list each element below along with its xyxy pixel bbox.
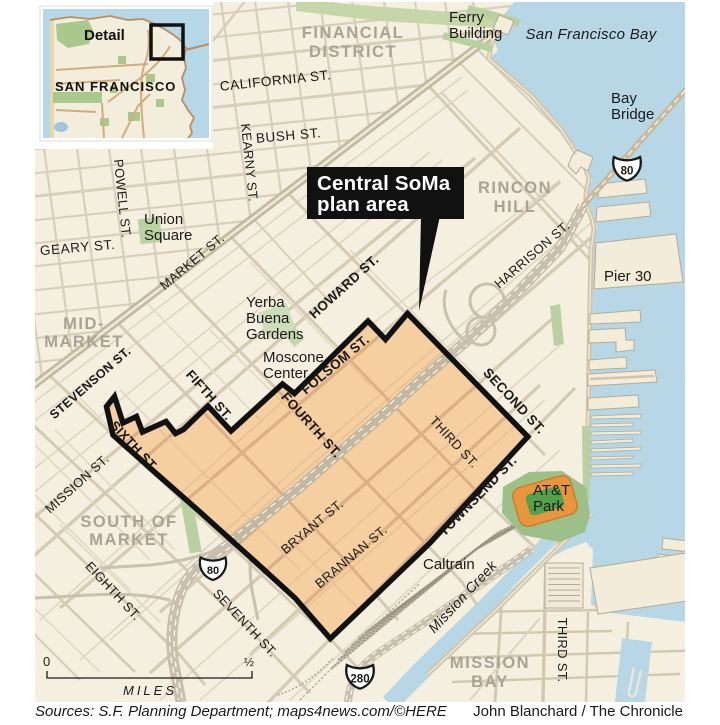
svg-text:DISTRICT: DISTRICT [309, 43, 397, 61]
svg-text:280: 280 [350, 673, 369, 685]
svg-text:FINANCIAL: FINANCIAL [302, 24, 404, 42]
svg-text:Gardens: Gardens [246, 326, 304, 343]
svg-text:AT&T: AT&T [533, 482, 570, 499]
svg-text:Bridge: Bridge [611, 106, 654, 123]
svg-text:Ferry: Ferry [449, 9, 484, 26]
svg-text:Center: Center [263, 365, 308, 382]
svg-text:Central SoMa: Central SoMa [317, 172, 451, 195]
svg-text:MISSION: MISSION [450, 654, 530, 672]
svg-text:MARKET: MARKET [89, 531, 169, 549]
svg-text:Bay: Bay [611, 90, 637, 107]
svg-text:THIRD ST.: THIRD ST. [555, 618, 570, 683]
svg-text:80: 80 [207, 565, 219, 577]
svg-text:Moscone: Moscone [263, 349, 324, 366]
svg-text:MARKET: MARKET [44, 333, 124, 351]
svg-text:Buena: Buena [246, 310, 290, 327]
svg-text:Square: Square [144, 227, 192, 244]
svg-text:Pier 30: Pier 30 [604, 268, 652, 285]
svg-text:MID-: MID- [63, 315, 105, 333]
svg-text:Park: Park [533, 498, 564, 515]
svg-text:Caltrain: Caltrain [423, 556, 475, 573]
svg-text:Building: Building [449, 25, 502, 42]
svg-text:SOUTH OF: SOUTH OF [80, 513, 177, 531]
svg-text:HILL: HILL [494, 198, 537, 216]
svg-text:San Francisco Bay: San Francisco Bay [526, 26, 658, 43]
svg-text:SAN FRANCISCO: SAN FRANCISCO [55, 79, 176, 94]
svg-text:Sources: S.F. Planning Departm: Sources: S.F. Planning Department; maps4… [35, 703, 448, 720]
svg-text:RINCON: RINCON [478, 179, 552, 197]
svg-text:80: 80 [621, 165, 634, 177]
svg-text:Detail: Detail [84, 27, 125, 44]
svg-text:½: ½ [244, 655, 254, 669]
svg-text:Union: Union [144, 211, 183, 228]
svg-text:John Blanchard / The Chronicle: John Blanchard / The Chronicle [473, 703, 683, 720]
svg-text:BAY: BAY [471, 673, 509, 691]
svg-text:MILES: MILES [123, 683, 177, 698]
svg-text:0: 0 [43, 654, 50, 669]
svg-text:plan area: plan area [317, 193, 409, 216]
svg-text:Yerba: Yerba [246, 294, 285, 311]
